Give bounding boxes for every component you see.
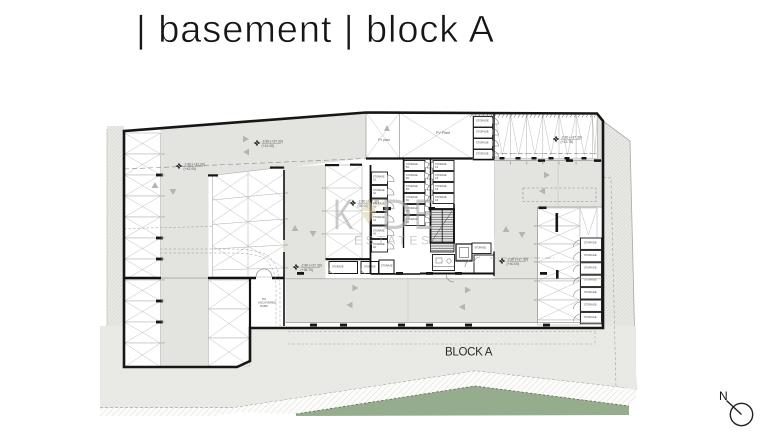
svg-text:STORAGE: STORAGE (476, 152, 489, 156)
svg-text:STORAGE: STORAGE (584, 290, 597, 294)
svg-text:BLOCK A: BLOCK A (445, 346, 493, 358)
svg-text:-2.80 (+37.30): -2.80 (+37.30) (561, 136, 582, 140)
svg-text:RAMP: RAMP (260, 304, 268, 308)
svg-text:ESTATES: ESTATES (354, 234, 433, 248)
svg-text:STORAGE: STORAGE (584, 253, 597, 257)
svg-text:(+42.00): (+42.00) (184, 167, 197, 171)
svg-text:K: K (333, 190, 354, 238)
svg-text:D: D (381, 191, 412, 239)
svg-text:PV plant: PV plant (378, 138, 390, 142)
svg-text:E: E (414, 190, 433, 238)
svg-text:STORAGE: STORAGE (332, 266, 344, 269)
svg-text:(+40.00): (+40.00) (507, 262, 520, 266)
svg-text:-2.80 (+37.30): -2.80 (+37.30) (507, 258, 528, 262)
svg-text:STORAGE: STORAGE (476, 119, 489, 123)
svg-text:-2.80 (+37.30): -2.80 (+37.30) (184, 163, 205, 167)
svg-text:STORAGE: STORAGE (475, 247, 487, 250)
svg-text:STORAGE: STORAGE (584, 303, 597, 307)
svg-text:-2.80 (+37.30): -2.80 (+37.30) (262, 140, 283, 144)
svg-text:STORAGE: STORAGE (584, 278, 597, 282)
svg-text:STORAGE: STORAGE (476, 130, 489, 134)
svg-text:(+41.00): (+41.00) (262, 144, 275, 148)
svg-text:STORAGE: STORAGE (584, 265, 597, 269)
svg-text:-2.80 (+37.30): -2.80 (+37.30) (301, 264, 322, 268)
svg-text:STORAGE: STORAGE (381, 265, 393, 268)
svg-text:(+38.70): (+38.70) (301, 268, 314, 272)
svg-text:(+43.75): (+43.75) (561, 140, 574, 144)
svg-text:PV Plant: PV Plant (436, 131, 450, 135)
svg-text:STORAGE: STORAGE (584, 241, 597, 245)
svg-text:N: N (719, 389, 728, 403)
svg-text:STORAGE: STORAGE (584, 315, 597, 319)
svg-text:STORAGE: STORAGE (476, 141, 489, 145)
